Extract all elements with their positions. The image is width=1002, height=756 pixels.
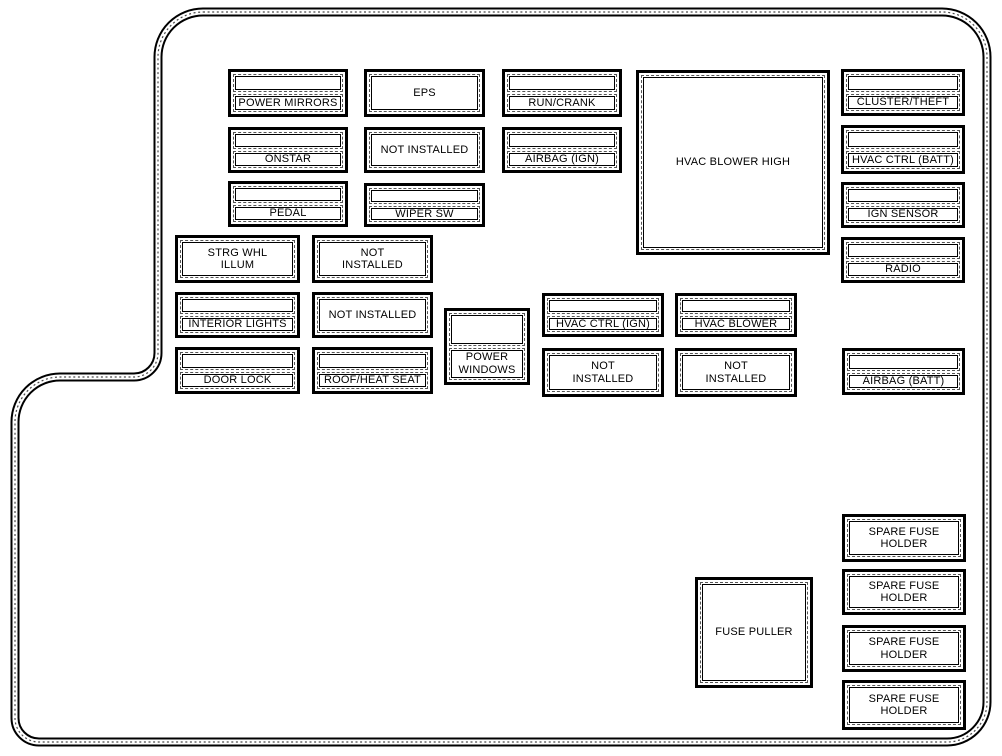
fuse-label: PEDAL: [235, 207, 341, 220]
fuse-label: INTERIOR LIGHTS: [182, 318, 293, 331]
fuse-slot-empty: [547, 298, 659, 314]
fuse-slot-empty-cavity: [848, 132, 958, 147]
fuse-not-installed-b: NOT INSTALLED: [312, 235, 433, 283]
fuse-hvac-blower-high: HVAC BLOWER HIGH: [636, 70, 830, 255]
fuse-label: SPARE FUSE HOLDER: [849, 521, 959, 555]
fuse-slot-labeled: ROOF/HEAT SEAT: [317, 372, 428, 390]
fuse-slot-labeled: SPARE FUSE HOLDER: [847, 574, 961, 610]
fuse-label: SPARE FUSE HOLDER: [849, 687, 959, 723]
fuse-box-diagram: POWER MIRRORS EPS RUN/CRANK HVAC BLOWER …: [0, 0, 1002, 756]
fuse-slot-empty-cavity: [849, 355, 958, 369]
fuse-slot-empty: [846, 130, 960, 149]
fuse-slot-empty: [233, 74, 343, 92]
fuse-label: STRG WHL ILLUM: [182, 242, 293, 276]
fuse-slot-labeled: EPS: [369, 74, 480, 112]
fuse-radio: RADIO: [841, 237, 965, 283]
fuse-slot-empty-cavity: [235, 188, 341, 201]
fuse-label: NOT INSTALLED: [549, 355, 657, 390]
fuse-slot-labeled: AIRBAG (BATT): [847, 373, 960, 391]
fuse-slot-empty: [233, 132, 343, 149]
fuse-slot-empty-cavity: [182, 299, 293, 312]
fuse-label: ONSTAR: [235, 153, 341, 166]
fuse-spare-fuse-holder-3: SPARE FUSE HOLDER: [842, 625, 966, 672]
fuse-label: HVAC BLOWER HIGH: [643, 77, 823, 248]
fuse-slot-labeled: NOT INSTALLED: [547, 353, 659, 392]
fuse-label: AIRBAG (IGN): [509, 153, 615, 166]
fuse-airbag-batt: AIRBAG (BATT): [842, 348, 965, 395]
fuse-slot-labeled: POWER WINDOWS: [449, 348, 525, 381]
fuse-slot-empty: [180, 297, 295, 314]
fuse-slot-empty-cavity: [848, 76, 958, 90]
fuse-slot-empty-cavity: [235, 134, 341, 147]
fuse-wiper-sw: WIPER SW: [364, 183, 485, 227]
fuse-slot-labeled: PEDAL: [233, 205, 343, 222]
fuse-pedal: PEDAL: [228, 181, 348, 227]
fuse-slot-labeled: AIRBAG (IGN): [507, 151, 617, 168]
fuse-slot-empty-cavity: [371, 190, 478, 202]
fuse-slot-labeled: INTERIOR LIGHTS: [180, 316, 295, 333]
fuse-label: NOT INSTALLED: [371, 134, 478, 166]
fuse-not-installed-a: NOT INSTALLED: [364, 127, 485, 173]
fuse-slot-labeled: FUSE PULLER: [700, 582, 808, 683]
fuse-slot-empty: [317, 352, 428, 370]
fuse-label: NOT INSTALLED: [319, 299, 426, 331]
fuse-label: DOOR LOCK: [182, 374, 293, 388]
fuse-hvac-blower: HVAC BLOWER: [675, 293, 797, 337]
fuse-slot-empty: [507, 132, 617, 149]
fuse-power-windows: POWER WINDOWS: [444, 308, 530, 385]
fuse-slot-labeled: RADIO: [846, 261, 960, 278]
fuse-label: CLUSTER/THEFT: [848, 96, 958, 110]
fuse-slot-empty: [846, 74, 960, 92]
fuse-slot-labeled: STRG WHL ILLUM: [180, 240, 295, 278]
fuse-label: ROOF/HEAT SEAT: [319, 374, 426, 388]
fuse-slot-empty: [449, 313, 525, 346]
fuse-label: NOT INSTALLED: [319, 242, 426, 276]
fuse-spare-fuse-holder-4: SPARE FUSE HOLDER: [842, 680, 966, 730]
fuse-slot-labeled: DOOR LOCK: [180, 372, 295, 390]
fuse-label: POWER MIRRORS: [235, 96, 341, 110]
fuse-slot-empty: [846, 242, 960, 259]
fuse-label: POWER WINDOWS: [451, 350, 523, 379]
fuse-slot-labeled: POWER MIRRORS: [233, 94, 343, 112]
fuse-label: WIPER SW: [371, 208, 478, 220]
fuse-spare-fuse-holder-2: SPARE FUSE HOLDER: [842, 569, 966, 615]
fuse-slot-labeled: HVAC BLOWER: [680, 316, 792, 332]
fuse-label: RADIO: [848, 263, 958, 276]
fuse-label: RUN/CRANK: [509, 96, 615, 110]
fuse-slot-empty-cavity: [848, 189, 958, 202]
fuse-slot-labeled: NOT INSTALLED: [317, 240, 428, 278]
fuse-hvac-ctrl-batt: HVAC CTRL (BATT): [841, 125, 965, 174]
fuse-label: HVAC CTRL (IGN): [549, 318, 657, 330]
fuse-slot-labeled: IGN SENSOR: [846, 206, 960, 223]
fuse-eps: EPS: [364, 69, 485, 117]
fuse-slot-labeled: SPARE FUSE HOLDER: [847, 519, 961, 557]
fuse-slot-labeled: SPARE FUSE HOLDER: [847, 630, 961, 667]
fuse-slot-empty: [180, 352, 295, 370]
fuse-power-mirrors: POWER MIRRORS: [228, 69, 348, 117]
fuse-slot-labeled: HVAC BLOWER HIGH: [641, 75, 825, 250]
fuse-slot-empty: [369, 188, 480, 204]
fuse-label: AIRBAG (BATT): [849, 375, 958, 389]
fuse-slot-labeled: CLUSTER/THEFT: [846, 94, 960, 112]
fuse-slot-labeled: RUN/CRANK: [507, 94, 617, 112]
fuse-hvac-ctrl-ign: HVAC CTRL (IGN): [542, 293, 664, 337]
fuse-slot-labeled: ONSTAR: [233, 151, 343, 168]
fuse-slot-labeled: HVAC CTRL (BATT): [846, 151, 960, 170]
fuse-slot-labeled: NOT INSTALLED: [317, 297, 428, 333]
fuse-slot-empty-cavity: [509, 76, 615, 90]
fuse-not-installed-d: NOT INSTALLED: [542, 348, 664, 397]
fuse-not-installed-e: NOT INSTALLED: [675, 348, 797, 397]
fuse-slot-empty-cavity: [509, 134, 615, 147]
fuse-slot-empty: [233, 186, 343, 203]
fuse-slot-labeled: WIPER SW: [369, 206, 480, 222]
fuse-ign-sensor: IGN SENSOR: [841, 182, 965, 228]
fuse-label: EPS: [371, 76, 478, 110]
fuse-slot-labeled: HVAC CTRL (IGN): [547, 316, 659, 332]
fuse-slot-empty-cavity: [848, 244, 958, 257]
fuse-slot-labeled: SPARE FUSE HOLDER: [847, 685, 961, 725]
fuse-airbag-ign: AIRBAG (IGN): [502, 127, 622, 173]
fuse-label: SPARE FUSE HOLDER: [849, 632, 959, 665]
fuse-slot-empty: [507, 74, 617, 92]
fuse-label: NOT INSTALLED: [682, 355, 790, 390]
fuse-slot-empty-cavity: [549, 300, 657, 312]
fuse-door-lock: DOOR LOCK: [175, 347, 300, 394]
fuse-label: FUSE PULLER: [702, 584, 806, 681]
fuse-roof-heat-seat: ROOF/HEAT SEAT: [312, 347, 433, 394]
fuse-cluster-theft: CLUSTER/THEFT: [841, 69, 965, 116]
fuse-slot-empty: [846, 187, 960, 204]
fuse-label: IGN SENSOR: [848, 208, 958, 221]
fuse-fuse-puller: FUSE PULLER: [695, 577, 813, 688]
fuse-slot-empty: [680, 298, 792, 314]
fuse-slot-empty-cavity: [451, 315, 523, 344]
fuse-label: HVAC BLOWER: [682, 318, 790, 330]
fuse-slot-labeled: NOT INSTALLED: [680, 353, 792, 392]
fuse-label: HVAC CTRL (BATT): [848, 153, 958, 168]
fuse-slot-empty-cavity: [235, 76, 341, 90]
fuse-onstar: ONSTAR: [228, 127, 348, 173]
fuse-label: SPARE FUSE HOLDER: [849, 576, 959, 608]
fuse-run-crank: RUN/CRANK: [502, 69, 622, 117]
fuse-spare-fuse-holder-1: SPARE FUSE HOLDER: [842, 514, 966, 562]
fuse-slot-labeled: NOT INSTALLED: [369, 132, 480, 168]
fuse-slot-empty-cavity: [182, 354, 293, 368]
fuse-interior-lights: INTERIOR LIGHTS: [175, 292, 300, 338]
fuse-slot-empty-cavity: [682, 300, 790, 312]
fuse-strg-whl-illum: STRG WHL ILLUM: [175, 235, 300, 283]
fuse-slot-empty-cavity: [319, 354, 426, 368]
fuse-not-installed-c: NOT INSTALLED: [312, 292, 433, 338]
fuse-slot-empty: [847, 353, 960, 371]
